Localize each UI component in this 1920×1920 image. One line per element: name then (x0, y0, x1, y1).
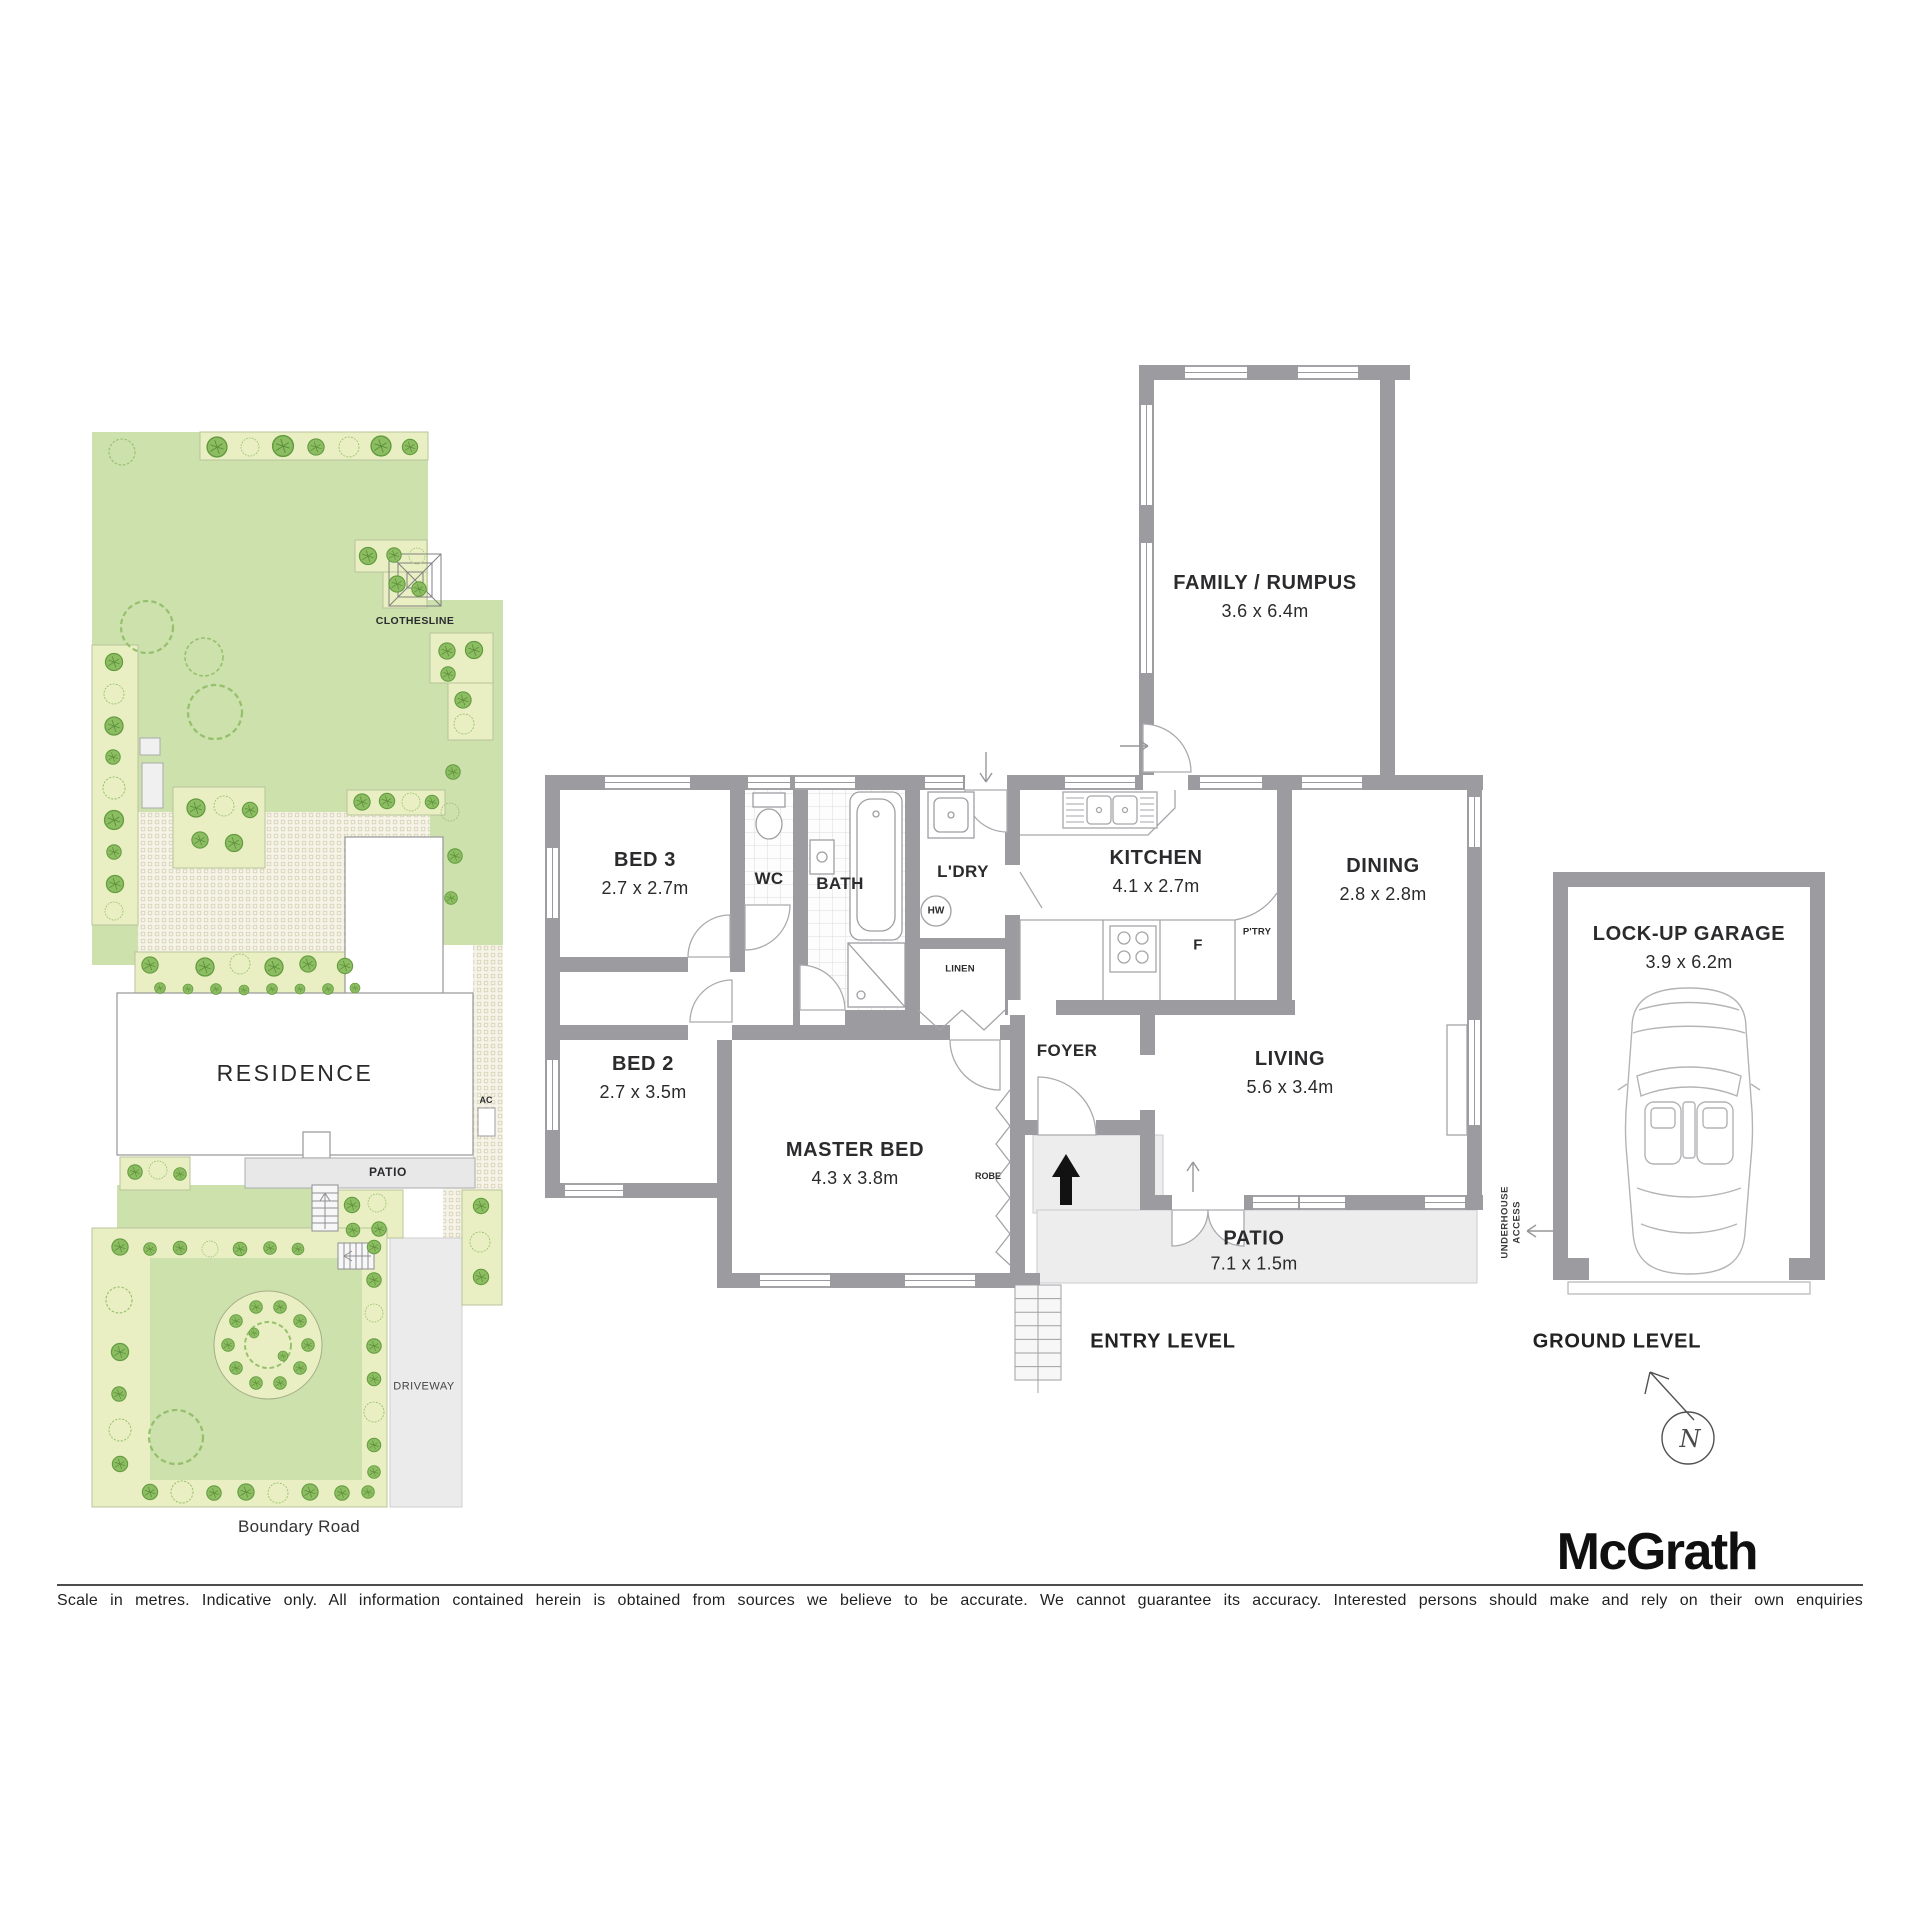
residence-label: RESIDENCE (217, 1060, 374, 1086)
hw-label: HW (928, 905, 945, 917)
compass-north-label: N (1680, 1426, 1701, 1454)
room-dims: 2.7 x 2.7m (601, 878, 688, 899)
kitchen-sink (1063, 792, 1157, 828)
laundry-label: L'DRY (937, 862, 989, 882)
room-name: LIVING (1246, 1048, 1333, 1071)
room-dims: 7.1 x 1.5m (1210, 1254, 1297, 1275)
bath-label: BATH (816, 874, 864, 894)
site-patio-strip (245, 1158, 475, 1188)
room-name: MASTER BED (786, 1139, 924, 1162)
robe-label: ROBE (975, 1171, 1001, 1181)
patio-step-arrow (1187, 1162, 1199, 1192)
room-dims: 2.7 x 3.5m (599, 1082, 686, 1103)
room-name: PATIO (1210, 1228, 1297, 1251)
room-label-master: MASTER BED 4.3 x 3.8m (786, 1139, 924, 1189)
room-name: LOCK-UP GARAGE (1593, 923, 1785, 946)
room-label-garage: LOCK-UP GARAGE 3.9 x 6.2m (1593, 923, 1785, 973)
road-label: Boundary Road (238, 1517, 360, 1537)
entry-level-label: ENTRY LEVEL (1090, 1331, 1236, 1354)
room-label-bed2: BED 2 2.7 x 3.5m (599, 1053, 686, 1103)
room-dims: 4.3 x 3.8m (786, 1168, 924, 1189)
room-label-dining: DINING 2.8 x 2.8m (1339, 855, 1426, 905)
site-patio-label: PATIO (369, 1166, 407, 1180)
driveway-label: DRIVEWAY (393, 1381, 454, 1394)
ac-label: AC (480, 1095, 493, 1105)
room-name: FAMILY / RUMPUS (1173, 572, 1356, 595)
stove (1110, 926, 1156, 972)
wc-label: WC (754, 869, 783, 889)
fridge-label: F (1193, 936, 1203, 953)
site-stairs-vertical (312, 1185, 338, 1231)
room-label-family: FAMILY / RUMPUS 3.6 x 6.4m (1173, 572, 1356, 622)
driveway-surface (390, 1238, 462, 1507)
pantry-corner (1235, 893, 1277, 920)
entry-stairs (1015, 1285, 1061, 1393)
garden-sheds (140, 738, 163, 808)
site-plan (92, 432, 503, 1507)
underhouse-access-label: UNDERHOUSE ACCESS (1500, 1181, 1525, 1263)
pantry-label: P'TRY (1243, 928, 1271, 939)
linen-label: LINEN (945, 965, 975, 976)
toilet-tank (753, 793, 785, 807)
room-label-kitchen: KITCHEN 4.1 x 2.7m (1109, 847, 1202, 897)
brand-logo: McGrath (1557, 1522, 1757, 1582)
disclaimer-text: Scale in metres. Indicative only. All in… (57, 1584, 1863, 1610)
room-label-patio: PATIO 7.1 x 1.5m (1210, 1228, 1297, 1275)
room-name: KITCHEN (1109, 847, 1202, 870)
floorplan-walls (545, 365, 1483, 1288)
room-name: DINING (1339, 855, 1426, 878)
wc-floor (745, 790, 793, 910)
room-dims: 5.6 x 3.4m (1246, 1077, 1333, 1098)
toilet-bowl (756, 809, 782, 839)
room-dims: 4.1 x 2.7m (1109, 876, 1202, 897)
garage-door (1568, 1282, 1810, 1294)
foyer-label: FOYER (1037, 1041, 1098, 1061)
room-name: BED 2 (599, 1053, 686, 1076)
ac-unit (478, 1108, 495, 1136)
room-dims: 3.9 x 6.2m (1593, 952, 1785, 973)
room-label-bed3: BED 3 2.7 x 2.7m (601, 849, 688, 899)
clothesline-label: CLOTHESLINE (376, 615, 455, 627)
room-label-living: LIVING 5.6 x 3.4m (1246, 1048, 1333, 1098)
north-arrow (1645, 1372, 1694, 1420)
floorplan-page: CLOTHESLINE RESIDENCE PATIO AC DRIVEWAY … (0, 0, 1920, 1920)
room-name: BED 3 (601, 849, 688, 872)
room-dims: 3.6 x 6.4m (1173, 601, 1356, 622)
room-dims: 2.8 x 2.8m (1339, 884, 1426, 905)
window-seat (1447, 1025, 1467, 1135)
car-icon (1618, 988, 1760, 1274)
ground-level-label: GROUND LEVEL (1533, 1331, 1702, 1354)
